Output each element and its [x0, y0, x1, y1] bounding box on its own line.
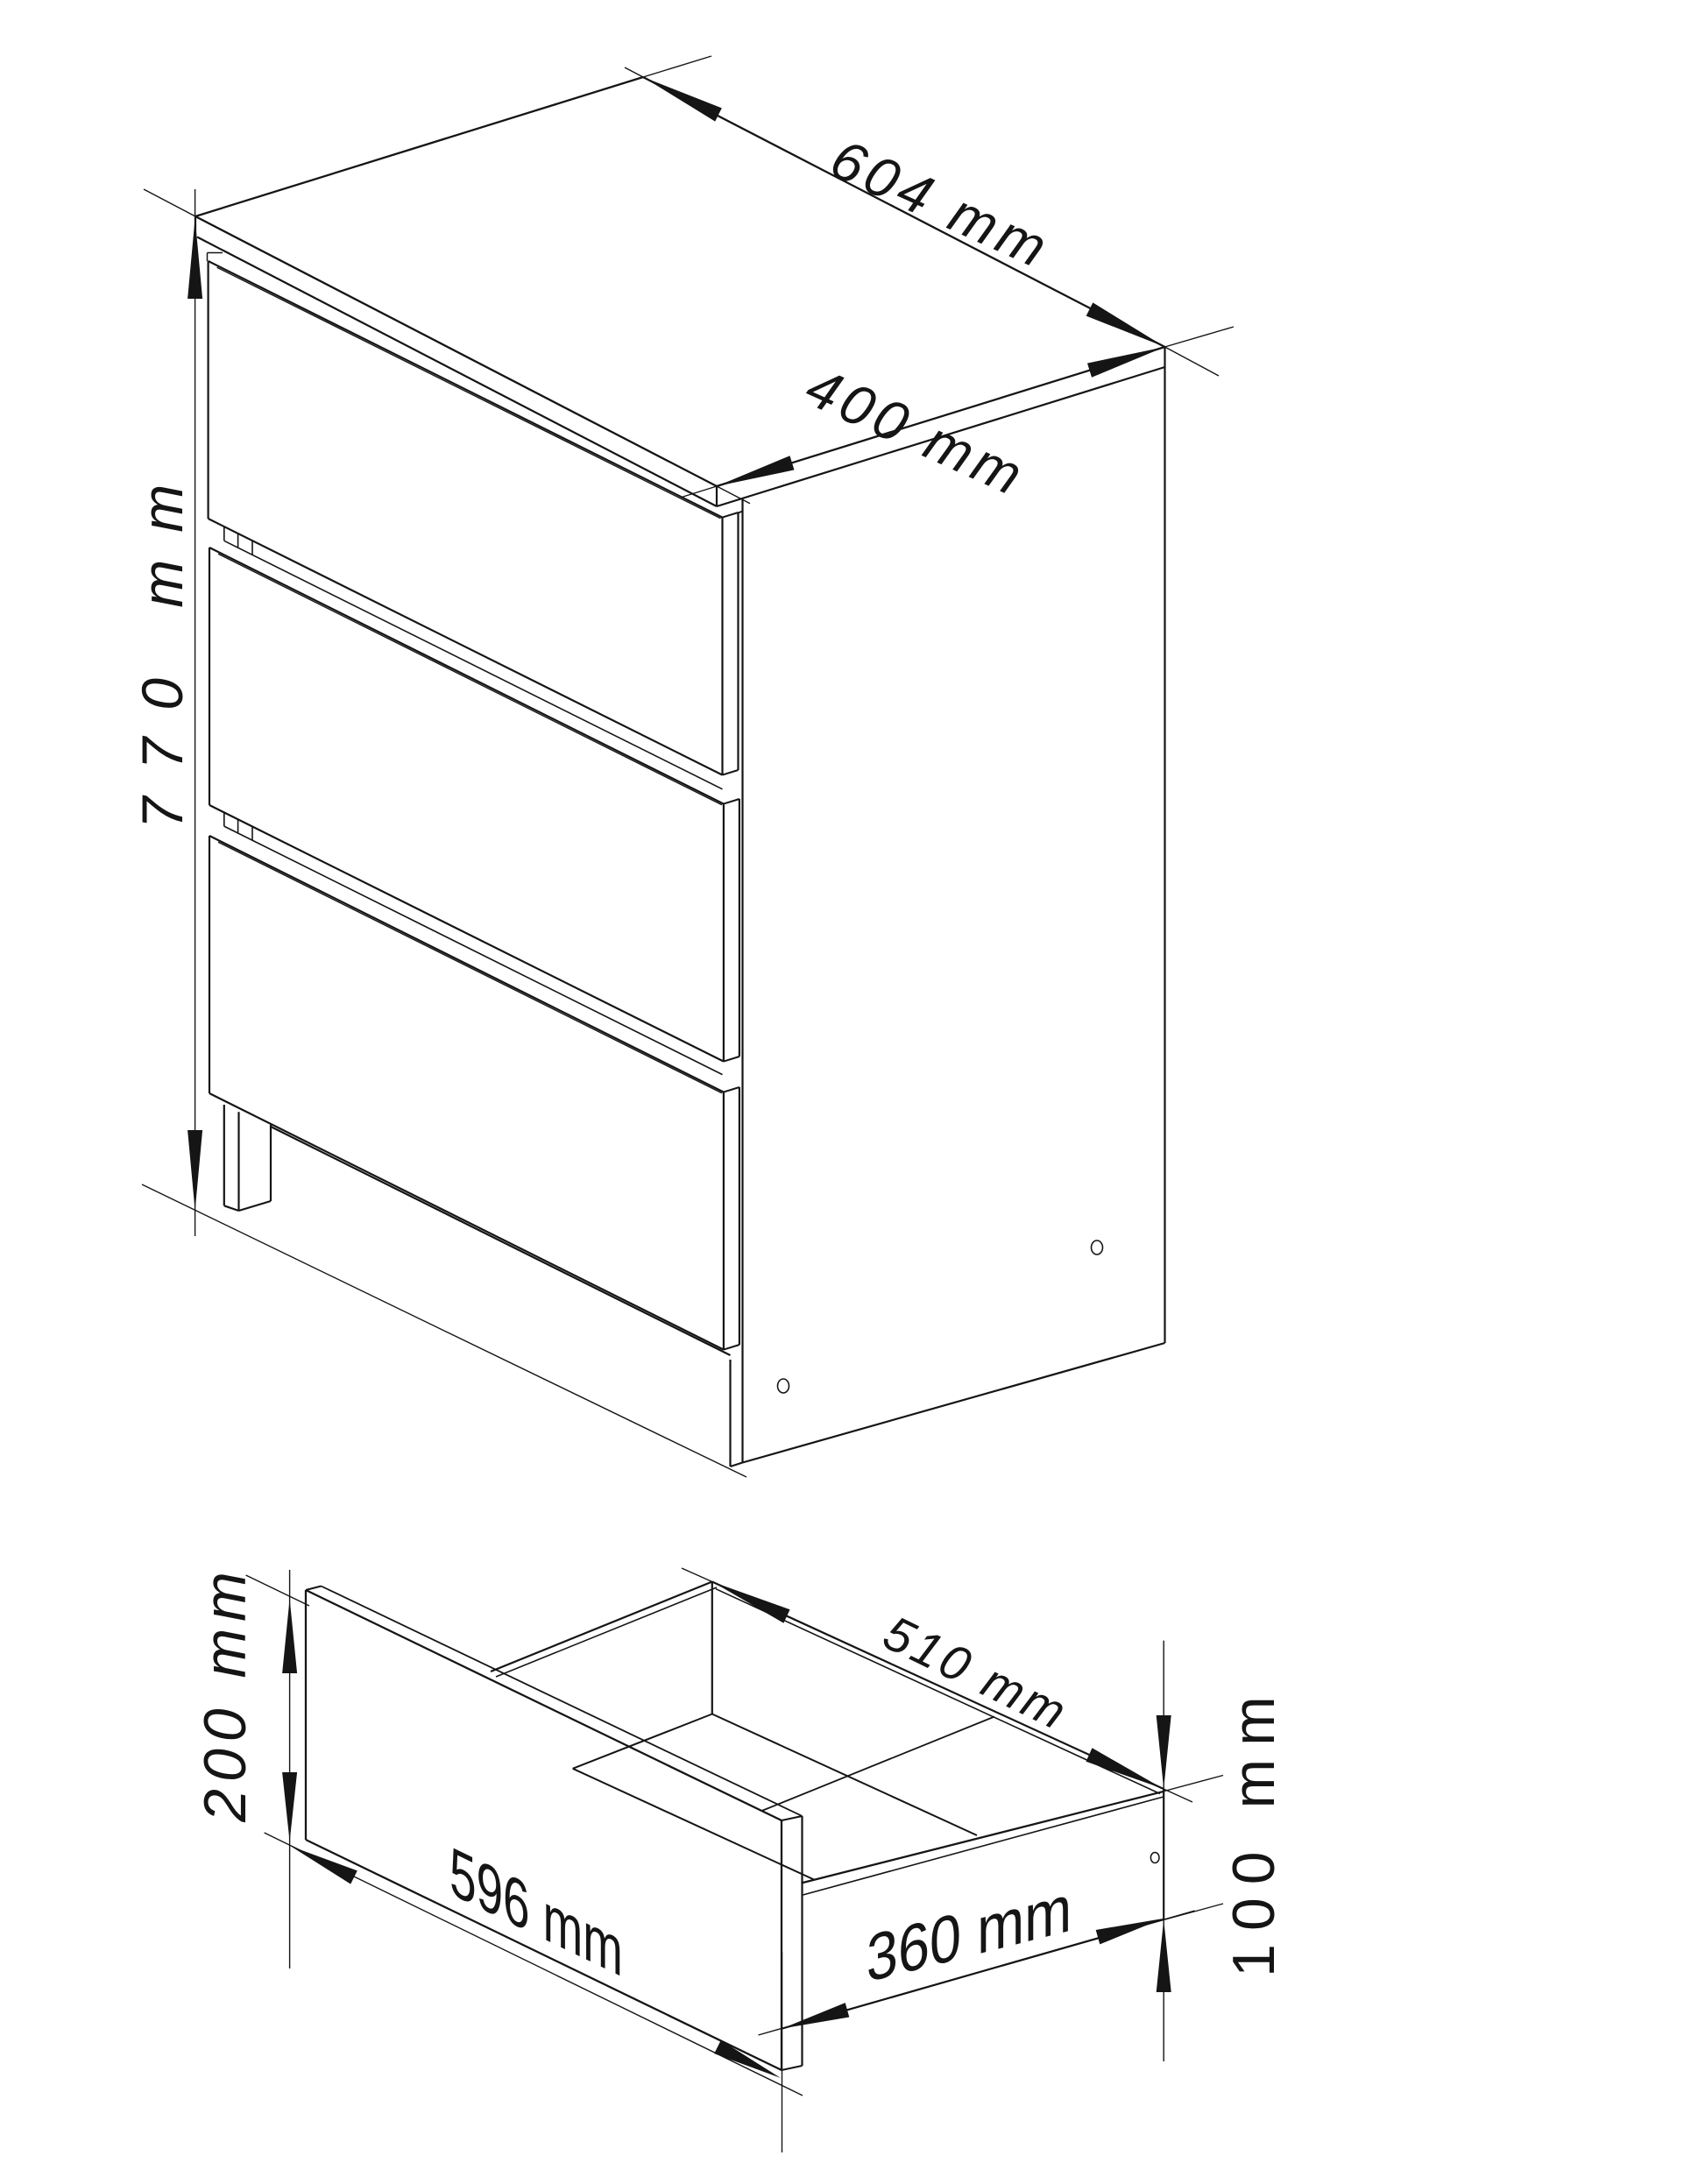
- svg-text:100 mm: 100 mm: [1220, 1683, 1287, 1977]
- svg-text:770 mm: 770 mm: [130, 457, 195, 829]
- svg-text:200 mm: 200 mm: [192, 1565, 258, 1823]
